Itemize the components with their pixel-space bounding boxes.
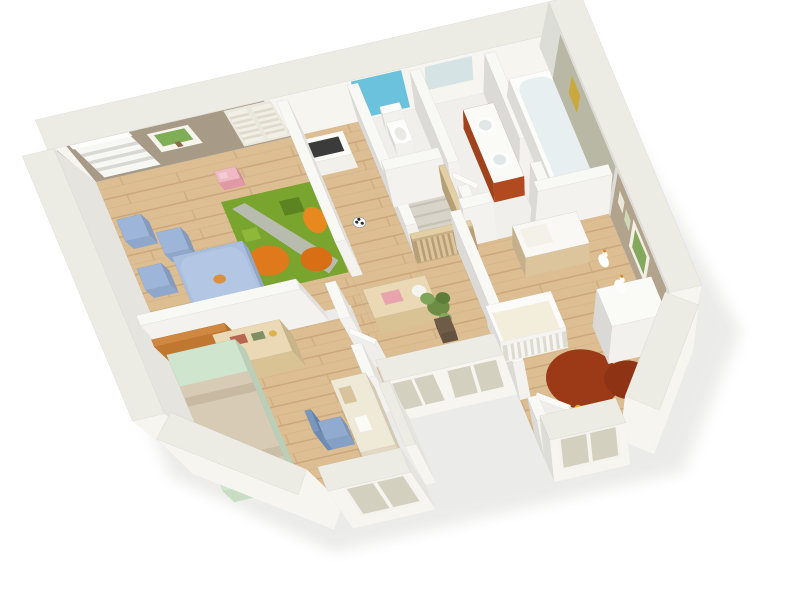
floor-plan-render bbox=[0, 0, 800, 600]
floorplan-canvas bbox=[0, 0, 800, 600]
floorplan-group bbox=[10, 0, 790, 583]
